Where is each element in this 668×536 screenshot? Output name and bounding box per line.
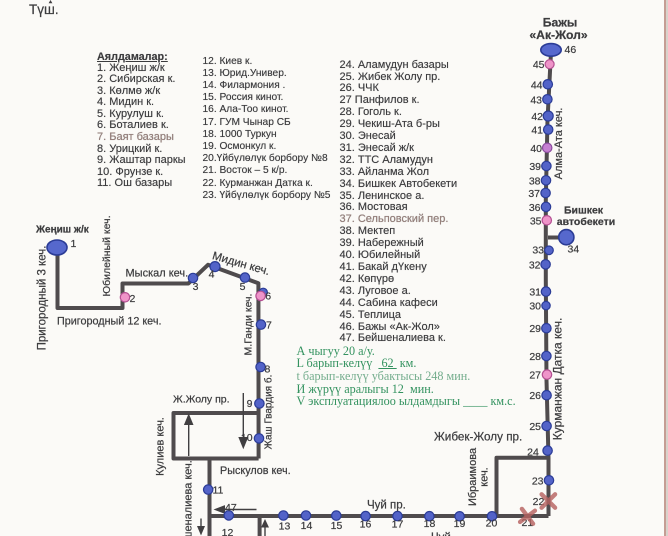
svg-text:5: 5 (240, 281, 246, 293)
svg-text:7: 7 (266, 320, 272, 332)
svg-text:1: 1 (71, 238, 77, 250)
svg-text:Мыскал кеч.: Мыскал кеч. (126, 268, 189, 280)
svg-text:37: 37 (528, 188, 540, 200)
svg-text:кеч.: кеч. (478, 467, 490, 486)
svg-text:Курманжан Датка кеч.: Курманжан Датка кеч. (551, 318, 565, 441)
svg-text:20: 20 (486, 518, 498, 530)
svg-text:46: 46 (565, 44, 577, 56)
svg-text:42: 42 (531, 111, 543, 123)
svg-text:41: 41 (531, 125, 543, 137)
svg-text:45: 45 (533, 59, 545, 71)
svg-text:26: 26 (529, 390, 541, 402)
svg-text:33: 33 (532, 245, 544, 257)
svg-text:39: 39 (529, 161, 541, 173)
svg-text:Чуй: Чуй (431, 532, 451, 536)
svg-text:Чуй пр.: Чуй пр. (367, 500, 406, 512)
svg-text:32: 32 (529, 259, 541, 271)
svg-text:Бишкек: Бишкек (564, 205, 604, 217)
svg-text:8: 8 (265, 364, 271, 376)
svg-text:10: 10 (241, 432, 253, 444)
svg-text:Юбилейный кеч.: Юбилейный кеч. (101, 215, 113, 296)
svg-text:6: 6 (265, 290, 271, 302)
svg-text:12: 12 (222, 527, 234, 536)
svg-text:Жеңиш ж/к: Жеңиш ж/к (35, 225, 90, 236)
svg-text:2: 2 (130, 293, 136, 305)
svg-text:Жаш Гвардия б.: Жаш Гвардия б. (263, 375, 275, 450)
svg-text:Мидин кеч.: Мидин кеч. (211, 250, 271, 278)
svg-text:25: 25 (529, 421, 541, 433)
svg-text:Ж.Жолу пр.: Ж.Жолу пр. (173, 394, 230, 406)
svg-text:Пригородный 12 кеч.: Пригородный 12 кеч. (57, 316, 161, 328)
svg-text:19: 19 (454, 518, 466, 530)
svg-text:Рыскулов кеч.: Рыскулов кеч. (220, 465, 291, 477)
svg-text:18: 18 (424, 518, 436, 530)
svg-text:30: 30 (529, 301, 541, 313)
svg-text:38: 38 (529, 175, 541, 187)
svg-text:28: 28 (529, 351, 541, 363)
svg-text:15: 15 (331, 520, 343, 532)
svg-text:Кулиев кеч.: Кулиев кеч. (155, 417, 167, 476)
svg-text:Ибраимова: Ибраимова (467, 447, 479, 506)
svg-text:23: 23 (532, 475, 544, 487)
svg-text:«Ак-Жол»: «Ак-Жол» (529, 28, 587, 42)
svg-text:13: 13 (279, 521, 291, 533)
svg-text:Жибек-Жолу пр.: Жибек-Жолу пр. (434, 431, 522, 444)
svg-text:40: 40 (530, 143, 542, 155)
svg-text:29: 29 (529, 323, 541, 335)
svg-text:Түш.: Түш. (29, 2, 59, 17)
svg-text:31: 31 (529, 287, 541, 299)
svg-text:14: 14 (301, 520, 313, 532)
svg-text:47: 47 (225, 502, 237, 514)
svg-text:24: 24 (527, 447, 539, 459)
svg-text:автобекети: автобекети (557, 216, 615, 228)
svg-text:34: 34 (568, 243, 580, 255)
svg-text:16: 16 (360, 519, 372, 531)
svg-text:4: 4 (209, 269, 215, 281)
svg-text:Бейшеналиева кеч.: Бейшеналиева кеч. (183, 460, 195, 536)
svg-text:9: 9 (247, 398, 253, 410)
svg-text:17: 17 (392, 518, 404, 530)
svg-text:М.Ганди кеч.: М.Ганди кеч. (243, 294, 255, 356)
svg-text:11: 11 (213, 485, 224, 497)
svg-text:27: 27 (529, 370, 541, 382)
svg-text:3: 3 (193, 281, 199, 293)
svg-text:36: 36 (529, 202, 541, 214)
svg-text:35: 35 (530, 215, 542, 227)
svg-text:43: 43 (530, 94, 542, 106)
svg-text:Пригородный 3 кеч.: Пригородный 3 кеч. (37, 246, 49, 351)
svg-text:Алма-Ата кеч.: Алма-Ата кеч. (553, 108, 565, 180)
svg-text:44: 44 (531, 79, 543, 91)
